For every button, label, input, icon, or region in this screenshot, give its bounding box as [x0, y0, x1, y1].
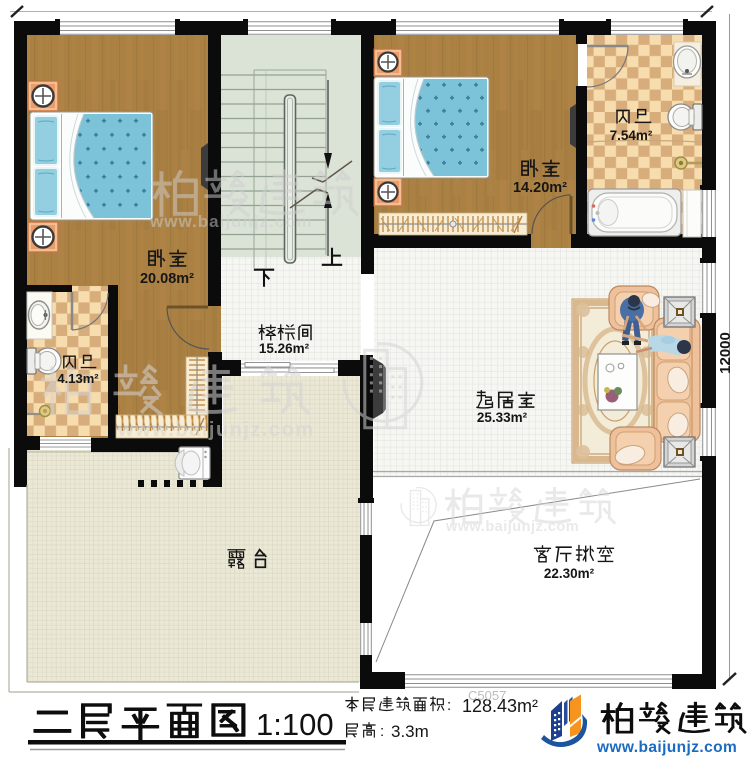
svg-text:7.54m²: 7.54m²	[610, 128, 653, 143]
svg-text:25.33m²: 25.33m²	[477, 410, 528, 425]
svg-text:www.baijunjz.com: www.baijunjz.com	[117, 419, 315, 441]
svg-text:20.08m²: 20.08m²	[140, 271, 194, 287]
svg-text:22.30m²: 22.30m²	[544, 566, 595, 581]
svg-text:4.13m²: 4.13m²	[57, 371, 99, 386]
svg-text::: :	[447, 697, 451, 714]
svg-text:C5057: C5057	[468, 688, 506, 703]
svg-text:14.20m²: 14.20m²	[513, 180, 567, 196]
svg-text:1:100: 1:100	[256, 707, 334, 742]
svg-text:3.3m: 3.3m	[391, 722, 429, 741]
svg-text:15.26m²: 15.26m²	[259, 341, 310, 356]
svg-text:www.baijunjz.com: www.baijunjz.com	[596, 739, 737, 756]
svg-text:www.baijunjz.com: www.baijunjz.com	[445, 519, 579, 535]
svg-text::: :	[380, 723, 384, 740]
svg-text:12000: 12000	[717, 332, 734, 374]
svg-text:www.baijunjz.com: www.baijunjz.com	[149, 212, 313, 231]
